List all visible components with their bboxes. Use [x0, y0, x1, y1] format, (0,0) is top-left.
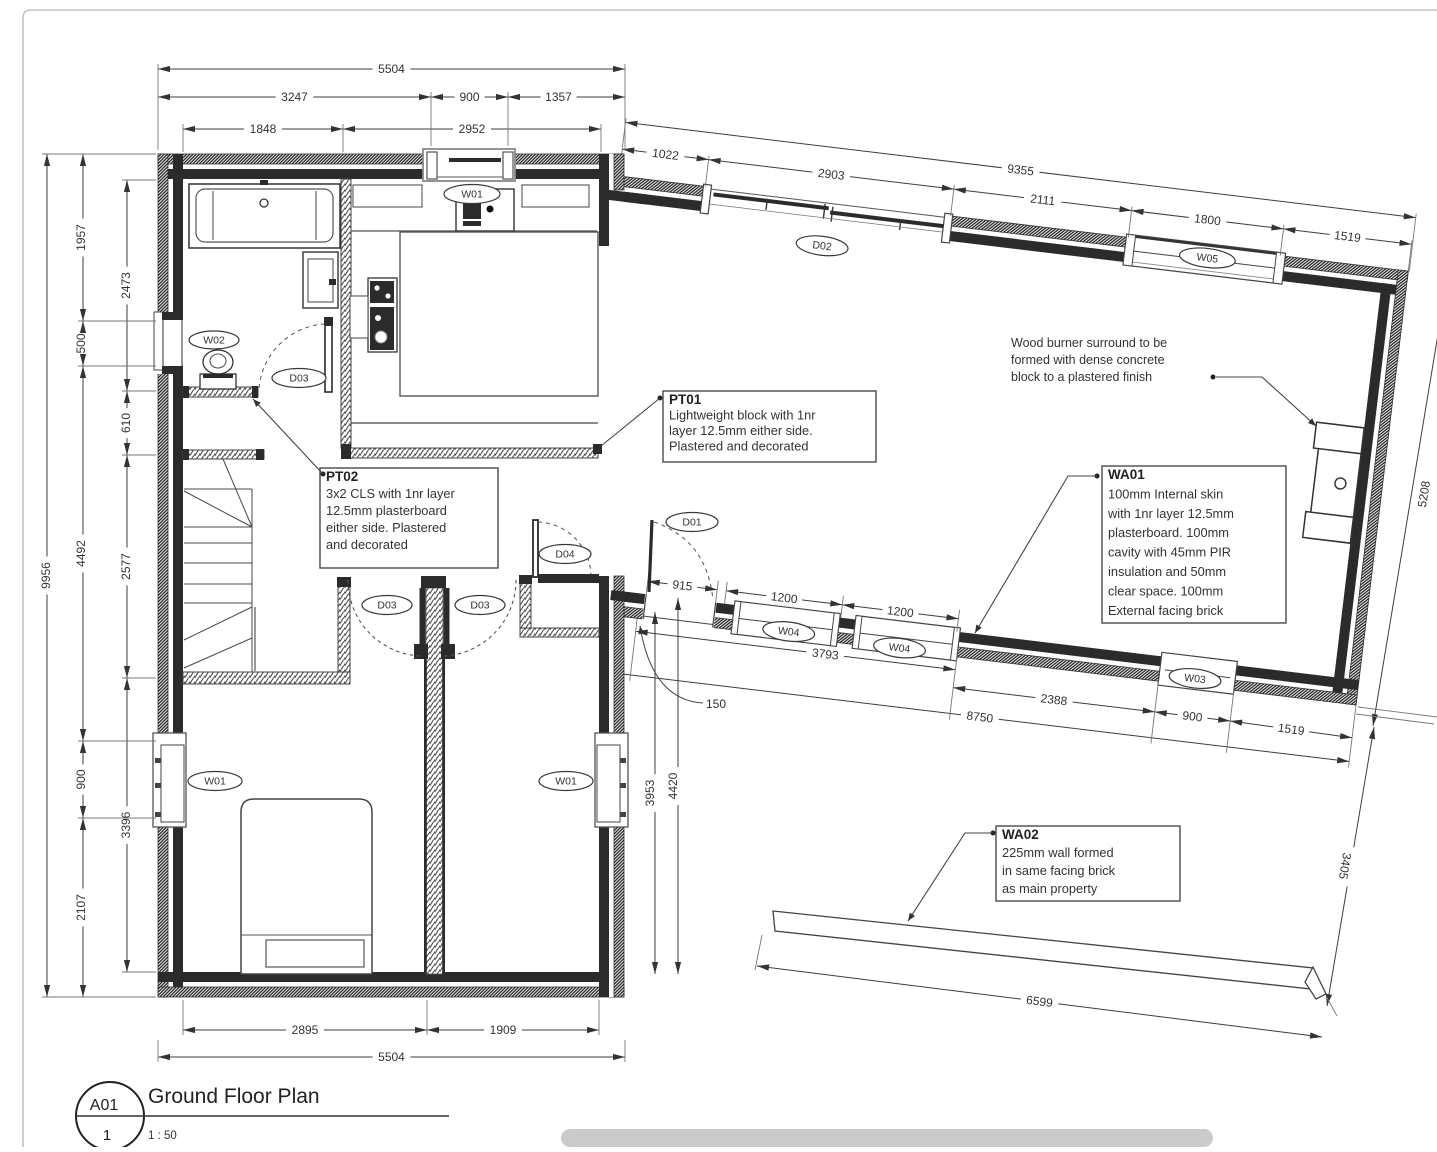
svg-text:500: 500: [74, 333, 88, 353]
svg-text:900: 900: [74, 769, 88, 789]
svg-text:D04: D04: [555, 549, 574, 561]
svg-text:150: 150: [706, 697, 726, 711]
svg-text:Wood burner surround to be: Wood burner surround to be: [1011, 336, 1167, 350]
svg-text:D02: D02: [812, 239, 833, 253]
svg-text:D03: D03: [470, 600, 489, 612]
svg-text:3247: 3247: [281, 90, 308, 104]
svg-text:A01: A01: [90, 1097, 119, 1114]
svg-text:W01: W01: [461, 189, 483, 201]
svg-text:with 1nr layer 12.5mm: with 1nr layer 12.5mm: [1107, 506, 1234, 521]
svg-text:Lightweight block with 1nr: Lightweight block with 1nr: [669, 408, 816, 423]
svg-text:1848: 1848: [250, 122, 277, 136]
svg-text:2107: 2107: [74, 894, 88, 921]
svg-text:PT01: PT01: [669, 392, 702, 407]
svg-text:PT02: PT02: [326, 469, 358, 484]
svg-text:900: 900: [459, 90, 479, 104]
svg-text:in same facing brick: in same facing brick: [1002, 863, 1116, 878]
svg-text:5504: 5504: [378, 1050, 405, 1064]
svg-text:100mm Internal skin: 100mm Internal skin: [1108, 486, 1223, 501]
svg-text:4492: 4492: [74, 540, 88, 567]
svg-text:Ground Floor Plan: Ground Floor Plan: [148, 1085, 320, 1108]
svg-text:1357: 1357: [545, 90, 572, 104]
svg-text:as main property: as main property: [1002, 881, 1098, 896]
svg-text:W02: W02: [203, 335, 225, 347]
svg-text:block to a plastered finish: block to a plastered finish: [1011, 370, 1152, 384]
svg-text:610: 610: [119, 413, 133, 433]
svg-text:2111: 2111: [1029, 191, 1056, 208]
svg-text:W01: W01: [204, 776, 226, 788]
svg-text:clear space. 100mm: clear space. 100mm: [1108, 583, 1223, 598]
svg-text:3953: 3953: [643, 779, 657, 806]
svg-text:formed with dense concrete: formed with dense concrete: [1011, 353, 1165, 367]
svg-text:2895: 2895: [292, 1023, 319, 1037]
svg-text:3x2 CLS with 1nr layer: 3x2 CLS with 1nr layer: [326, 486, 455, 501]
svg-text:1909: 1909: [490, 1023, 517, 1037]
svg-text:cavity with 45mm PIR: cavity with 45mm PIR: [1108, 545, 1231, 560]
svg-text:9956: 9956: [39, 562, 53, 589]
svg-text:2952: 2952: [459, 122, 486, 136]
svg-text:1957: 1957: [74, 224, 88, 251]
svg-text:plasterboard. 100mm: plasterboard. 100mm: [1108, 525, 1229, 540]
svg-text:1: 1: [103, 1127, 111, 1144]
svg-text:Plastered and decorated: Plastered and decorated: [669, 439, 808, 454]
svg-text:W01: W01: [555, 776, 577, 788]
svg-text:either side. Plastered: either side. Plastered: [326, 520, 446, 535]
svg-text:3396: 3396: [119, 811, 133, 838]
svg-text:900: 900: [1182, 708, 1204, 724]
svg-text:D01: D01: [682, 517, 701, 529]
svg-text:WA02: WA02: [1002, 827, 1039, 842]
svg-text:insulation and 50mm: insulation and 50mm: [1108, 564, 1226, 579]
svg-text:WA01: WA01: [1108, 467, 1145, 482]
svg-text:915: 915: [672, 577, 694, 593]
svg-text:2473: 2473: [119, 272, 133, 299]
svg-text:5504: 5504: [378, 62, 405, 76]
svg-text:2577: 2577: [119, 553, 133, 580]
svg-text:layer 12.5mm either side.: layer 12.5mm either side.: [669, 423, 813, 438]
svg-text:and decorated: and decorated: [326, 537, 408, 552]
svg-text:225mm wall formed: 225mm wall formed: [1002, 845, 1114, 860]
svg-text:D03: D03: [377, 600, 396, 612]
svg-text:12.5mm plasterboard: 12.5mm plasterboard: [326, 503, 447, 518]
svg-text:4420: 4420: [666, 772, 680, 799]
svg-text:External facing brick: External facing brick: [1108, 603, 1224, 618]
svg-text:D03: D03: [289, 373, 308, 385]
svg-text:1 : 50: 1 : 50: [148, 1130, 177, 1142]
